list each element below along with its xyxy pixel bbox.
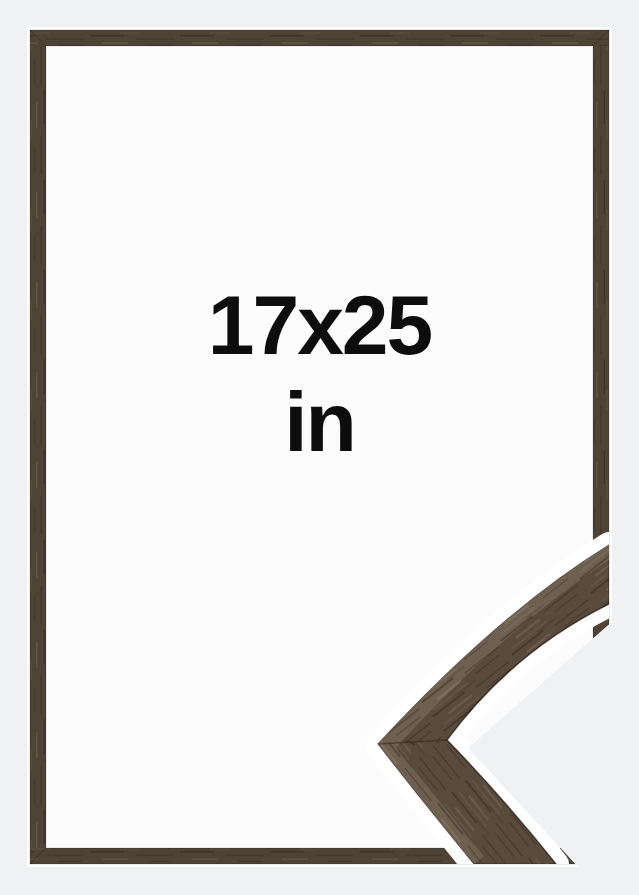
size-label: 17x25 in bbox=[46, 277, 593, 471]
size-unit: in bbox=[46, 374, 593, 471]
product-image-canvas: 17x25 in bbox=[0, 0, 639, 895]
size-value: 17x25 bbox=[46, 277, 593, 374]
